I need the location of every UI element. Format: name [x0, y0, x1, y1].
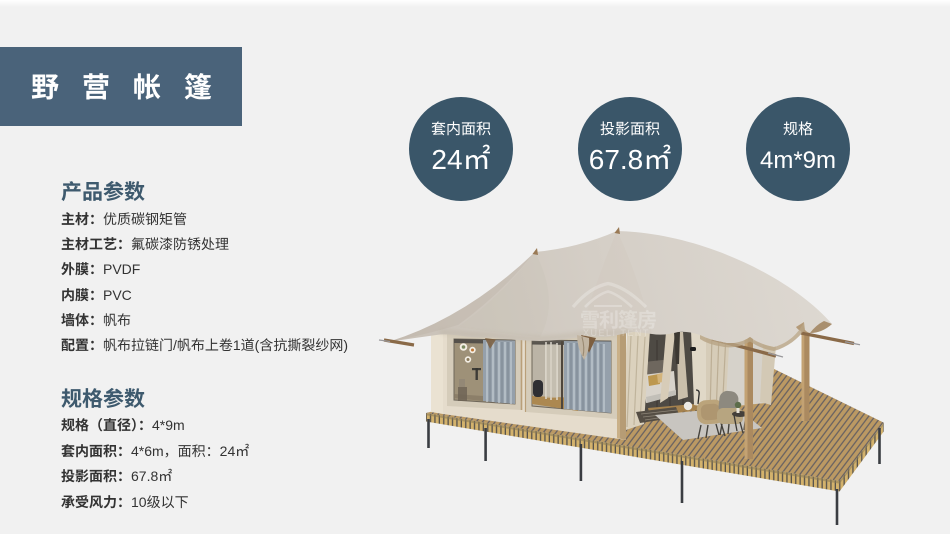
svg-text:XUELI TENT: XUELI TENT	[583, 328, 650, 338]
